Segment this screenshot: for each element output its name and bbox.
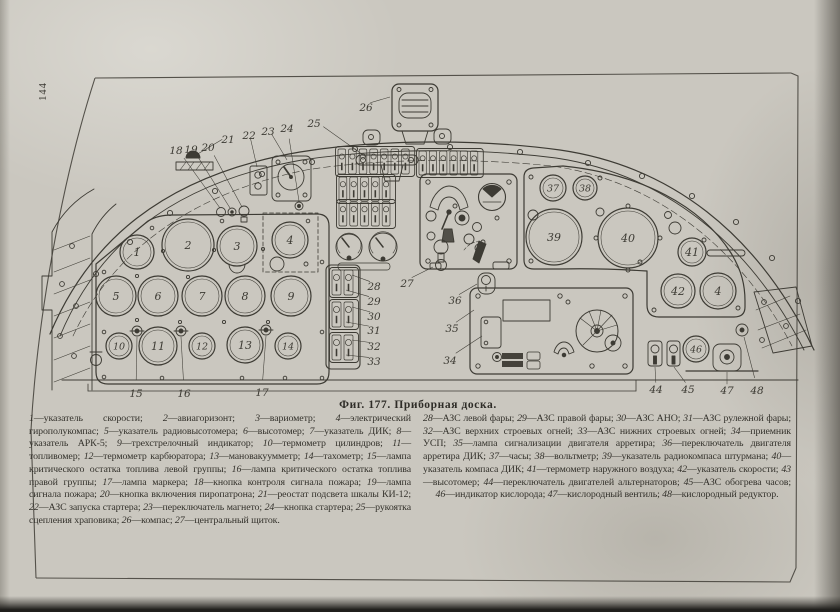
right-frame-bracket — [754, 287, 812, 353]
legend-item-35: 35—лампа сигнализации двигателя арретира… — [453, 438, 662, 449]
legend-item-46: 46—индикатор кислорода; — [436, 489, 548, 500]
small-meter-right — [369, 232, 397, 261]
figure-legend: 1—указатель скорости; 2—авиагоризонт; 3—… — [29, 413, 813, 527]
legend-item-24: 24—кнопка стартера; — [265, 502, 356, 513]
legend-item-28: 28—АЗС левой фары; — [423, 413, 517, 424]
lower-center-panel — [470, 288, 633, 374]
gauge-12: 12 — [189, 333, 215, 359]
legend-item-14: 14—тахометр; — [304, 451, 367, 462]
svg-text:47: 47 — [719, 385, 734, 397]
central-shield-27 — [420, 174, 517, 271]
svg-text:17: 17 — [255, 387, 269, 399]
svg-text:22: 22 — [241, 130, 256, 142]
svg-text:26: 26 — [358, 102, 373, 114]
legend-item-29: 29—АЗС правой фары; — [517, 413, 616, 424]
callout-30: 30 — [352, 307, 381, 323]
gauge-13: 13 — [227, 327, 263, 363]
alternator-switch-44 — [648, 341, 662, 366]
svg-text:48: 48 — [749, 385, 764, 397]
svg-text:38: 38 — [579, 183, 591, 194]
callout-32: 32 — [352, 340, 381, 353]
arrester-switch-36 — [478, 273, 495, 294]
svg-text:2: 2 — [184, 239, 192, 252]
compass-26 — [363, 84, 451, 145]
oxygen-regulator-48 — [736, 324, 748, 336]
svg-text:29: 29 — [366, 296, 381, 308]
svg-text:35: 35 — [445, 323, 459, 335]
clock-heat-azs-45 — [667, 341, 680, 366]
callout-20: 20 — [200, 142, 242, 207]
legend-item-42: 42—указатель скорости; — [677, 464, 781, 475]
oxygen-valve-47 — [713, 344, 741, 371]
legend-item-12: 12—термометр карбюратора; — [84, 451, 210, 462]
callout-26: 26 — [358, 97, 390, 114]
legend-item-38: 38—вольтметр; — [535, 451, 602, 462]
gauge-38: 38 — [573, 176, 597, 200]
svg-text:9: 9 — [288, 290, 295, 303]
callout-17: 17 — [255, 336, 269, 399]
callout-33: 33 — [346, 355, 381, 368]
gauge-41: 41 — [678, 238, 706, 266]
legend-item-20: 20—кнопка включения пиропатрона; — [100, 489, 258, 500]
gauge-11: 11 — [139, 327, 177, 365]
callout-27: 27 — [399, 267, 433, 290]
legend-item-27: 27—центральный щиток. — [175, 515, 280, 526]
legend-item-7: 7—указатель ДИК; — [310, 426, 397, 437]
svg-text:4: 4 — [286, 234, 294, 247]
legend-item-23: 23—переключатель магнето; — [143, 502, 264, 513]
svg-text:25: 25 — [306, 118, 321, 130]
svg-text:32: 32 — [367, 341, 381, 353]
svg-text:31: 31 — [367, 325, 380, 337]
callout-44: 44 — [648, 367, 662, 396]
gauge-6: 6 — [138, 276, 178, 316]
gauge-46: 46 — [683, 336, 709, 362]
callout-34: 34 — [443, 336, 482, 367]
svg-text:14: 14 — [282, 341, 294, 352]
svg-text:1: 1 — [134, 246, 141, 259]
legend-item-13: 13—мановакуумметр; — [209, 451, 304, 462]
gauge-9: 9 — [271, 276, 311, 316]
svg-text:8: 8 — [242, 290, 249, 303]
legend-item-37: 37—часы; — [489, 451, 534, 462]
legend-item-39: 39—указатель радиокомпаса штурмана; — [602, 451, 772, 462]
gauge-10: 10 — [106, 333, 132, 359]
svg-text:46: 46 — [689, 344, 702, 355]
svg-text:42: 42 — [670, 285, 685, 298]
svg-text:39: 39 — [547, 231, 561, 244]
legend-item-2: 2—авиагоризонт; — [163, 413, 255, 424]
svg-text:27: 27 — [399, 278, 414, 290]
callout-28: 28 — [352, 275, 381, 293]
legend-item-47: 47—кислородный вентиль; — [548, 489, 663, 500]
svg-text:12: 12 — [196, 341, 208, 352]
legend-item-22: 22—АЗС запуска стартера; — [29, 502, 143, 513]
gauge-2: 2 — [162, 219, 214, 271]
svg-text:36: 36 — [448, 295, 462, 307]
callout-36: 36 — [448, 284, 477, 307]
legend-item-1: 1—указатель скорости; — [29, 413, 163, 424]
gauge-5: 5 — [96, 276, 136, 316]
svg-text:4: 4 — [714, 285, 722, 298]
azs-switch-banks — [330, 147, 484, 363]
gauge-4: 4 — [272, 222, 308, 258]
warning-lamp-16 — [174, 326, 188, 336]
magneto-switch-23 — [272, 156, 311, 201]
svg-text:34: 34 — [443, 355, 456, 367]
gauge-39: 39 — [526, 209, 582, 265]
legend-item-9: 9—трехстрелочный индикатор; — [117, 438, 263, 449]
svg-text:33: 33 — [367, 356, 381, 368]
gauge-14: 14 — [275, 333, 301, 359]
legend-item-10: 10—термометр цилиндров; — [263, 438, 392, 449]
gauge-3: 3 — [217, 226, 257, 266]
svg-text:11: 11 — [151, 340, 165, 353]
svg-text:5: 5 — [113, 290, 120, 303]
legend-item-44: 44—переключатель двигателей альтернаторо… — [484, 477, 684, 488]
legend-item-26: 26—компас; — [122, 515, 175, 526]
svg-text:44: 44 — [648, 384, 662, 396]
oat-probe-bar — [707, 250, 745, 256]
svg-text:24: 24 — [279, 123, 293, 135]
svg-text:21: 21 — [220, 134, 234, 146]
callout-47: 47 — [719, 372, 734, 397]
svg-text:45: 45 — [680, 384, 695, 396]
svg-text:40: 40 — [620, 232, 635, 245]
callout-15: 15 — [129, 337, 143, 400]
legend-item-32: 32—АЗС верхних строевых огней; — [423, 426, 578, 437]
gauge-7: 7 — [182, 276, 222, 316]
legend-item-18: 18—кнопка контроля сигнала пожара; — [194, 477, 367, 488]
svg-text:6: 6 — [155, 290, 162, 303]
svg-text:19: 19 — [184, 144, 198, 156]
azs-switch-bank — [330, 268, 359, 298]
legend-item-33: 33—АЗС нижних строевых огней; — [578, 426, 731, 437]
legend-item-45: 45—АЗС обогрева часов; — [684, 477, 791, 488]
svg-text:41: 41 — [684, 246, 699, 259]
legend-item-21: 21—реостат подсвета шкалы КИ-12; — [258, 489, 411, 500]
scanned-manual-page: 144 — [0, 0, 840, 612]
warning-lamp-15 — [130, 326, 144, 336]
legend-column-left: 1—указатель скорости; 2—авиагоризонт; 3—… — [29, 413, 411, 527]
azs-switch-bank — [330, 300, 359, 330]
gauge-43: 4 — [700, 273, 736, 309]
svg-text:28: 28 — [366, 281, 381, 293]
gauge-40: 40 — [598, 208, 658, 268]
svg-text:30: 30 — [367, 311, 381, 323]
svg-text:18: 18 — [169, 145, 183, 157]
marker-lamp-17 — [259, 325, 273, 335]
legend-item-6: 6—высотомер; — [243, 426, 309, 437]
legend-item-17: 17—лампа маркера; — [102, 477, 193, 488]
svg-text:23: 23 — [260, 126, 275, 138]
legend-item-41: 41—термометр наружного воздуха; — [527, 464, 677, 475]
legend-item-3: 3—вариометр; — [255, 413, 335, 424]
gauge-1: 1 — [120, 235, 154, 269]
gauge-8: 8 — [225, 276, 265, 316]
figure-caption: Фиг. 177. Приборная доска. — [0, 399, 836, 411]
svg-text:10: 10 — [113, 341, 125, 352]
svg-text:37: 37 — [547, 183, 560, 194]
legend-column-right: 28—АЗС левой фары; 29—АЗС правой фары; 3… — [423, 413, 791, 527]
azs-switch-bank — [330, 333, 359, 363]
azs-switch-bank — [417, 149, 484, 178]
callout-48: 48 — [744, 337, 764, 397]
small-meter-left — [336, 233, 362, 260]
gauge-42: 42 — [661, 274, 695, 308]
svg-text:7: 7 — [199, 290, 206, 303]
svg-text:13: 13 — [238, 339, 252, 352]
svg-text:3: 3 — [234, 240, 241, 253]
legend-item-5: 5—указатель радиовысотомера; — [104, 426, 243, 437]
gauge-37: 37 — [540, 175, 566, 201]
legend-item-48: 48—кислородный редуктор. — [662, 489, 778, 500]
legend-item-30: 30—АЗС АНО; — [616, 413, 683, 424]
legend-item-31: 31—АЗС рулежной фары; — [683, 413, 791, 424]
